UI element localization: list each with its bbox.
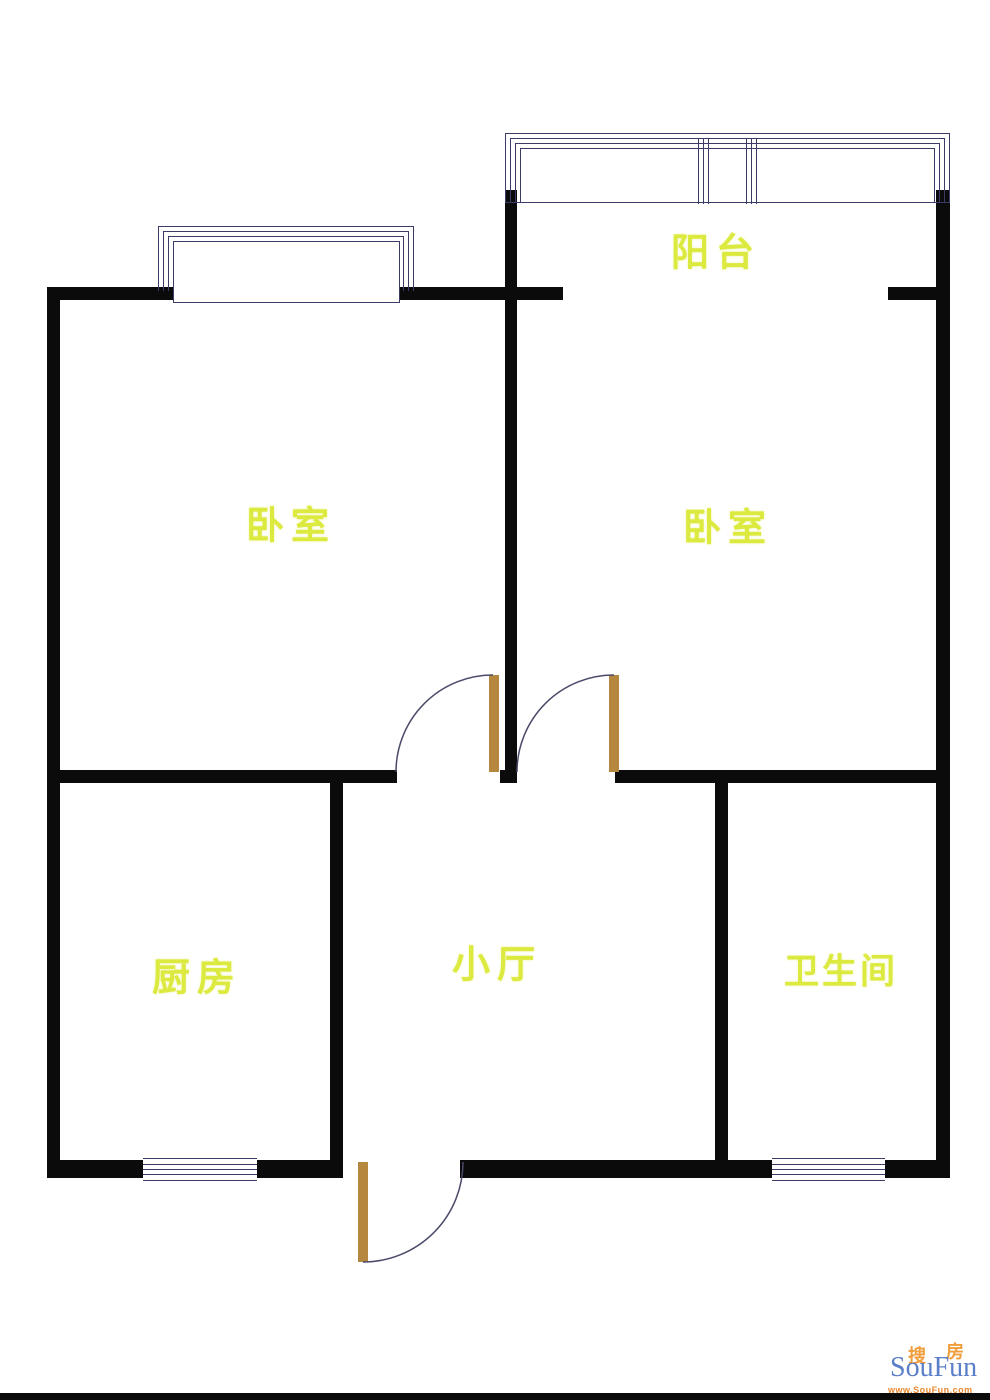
room-label-bedroom-left: 卧室 [246,495,336,550]
room-label-bathroom: 卫生间 [784,944,898,995]
soufun-logo: 搜 房 SouFun www.SouFun.com [886,1336,986,1396]
room-label-kitchen: 厨房 [152,947,242,1002]
door-arc-bedroom-right [517,675,614,772]
door-arc-entrance [363,1162,463,1262]
room-label-balcony: 阳台 [671,222,761,277]
bottom-border-bar [0,1393,990,1400]
door-arc-bedroom-left [396,675,493,772]
floorplan-canvas: 阳台 卧室 卧室 厨房 小厅 卫生间 搜 房 SouFun www.SouFun… [0,0,990,1400]
door-arc-layer [0,0,990,1400]
room-label-bedroom-right: 卧室 [683,497,773,552]
room-label-hall: 小厅 [452,934,542,989]
soufun-logo-brand: SouFun [890,1354,977,1382]
